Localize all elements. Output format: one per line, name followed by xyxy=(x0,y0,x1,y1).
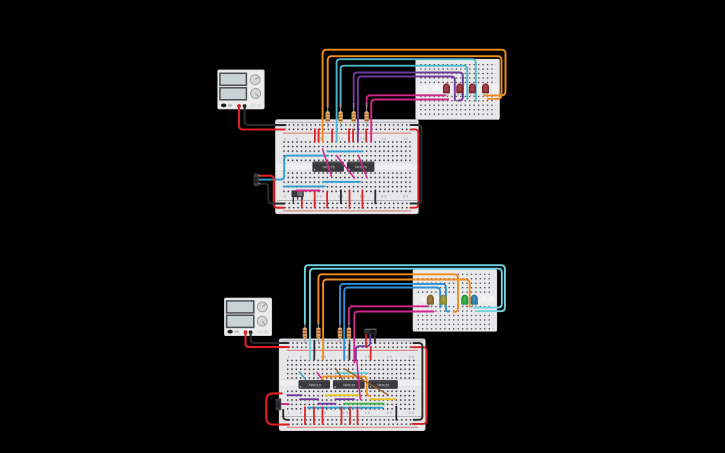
svg-text:74HC10: 74HC10 xyxy=(343,383,356,387)
svg-text:74HC10: 74HC10 xyxy=(308,383,321,387)
svg-text:1 5 10 15: 1 5 10 15 20 25 30 xyxy=(288,355,414,359)
svg-text:1 5 10 15: 1 5 10 15 20 25 30 xyxy=(284,137,408,141)
svg-text:74HC76: 74HC76 xyxy=(354,165,367,169)
svg-text:74HC20: 74HC20 xyxy=(377,383,390,387)
